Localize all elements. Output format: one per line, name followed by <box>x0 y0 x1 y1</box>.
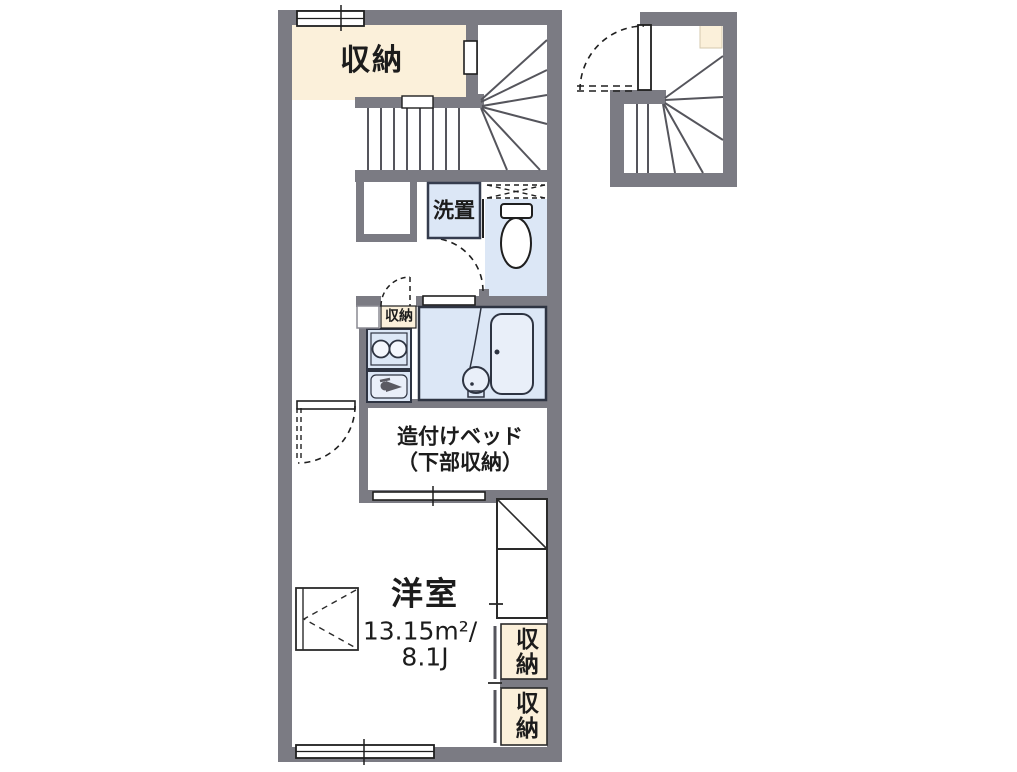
window-bed <box>373 492 485 500</box>
main-room-area-tatami: 8.1J <box>401 644 448 671</box>
wall-right <box>547 10 562 762</box>
wall-left <box>278 10 292 762</box>
bathtub-drain <box>495 350 500 355</box>
storage-right-bottom-label: 収納 <box>512 691 537 741</box>
wall-nook-right <box>410 182 417 238</box>
bed-label-line1: 造付けベッド <box>397 426 523 449</box>
main-room-door <box>297 401 355 409</box>
stair-block-wall-top <box>640 12 737 26</box>
burner-left <box>373 341 390 358</box>
stair-block-wall-left <box>610 90 624 187</box>
closet-top-label: 収納 <box>340 45 404 77</box>
main-room-label: 洋室 <box>391 577 459 612</box>
stair-block-closet-area <box>700 25 722 48</box>
main-room-area-sqm: 13.15m²/ <box>363 618 477 645</box>
wall-nook-bottom <box>356 234 417 242</box>
wash-basin-icon <box>463 367 489 393</box>
floor-plan: 収納 洗置 収納 造付けベッド （下部収納） 洋室 13.15m²/ 8.1J … <box>0 0 1017 772</box>
bed-label-line2: （下部収納） <box>397 452 523 475</box>
wall-storage-divider <box>500 679 547 688</box>
stair-block-door <box>638 25 651 90</box>
bath-door <box>423 296 475 305</box>
laundry-label: 洗置 <box>433 200 475 223</box>
floor-plan-drawing <box>0 0 1017 772</box>
stair-block-newel <box>610 90 666 104</box>
burner-right <box>390 341 407 358</box>
bathroom-unit <box>419 307 546 400</box>
storage-right-top-label: 収納 <box>512 627 537 677</box>
stair-block-wall-bottom <box>610 173 737 187</box>
wall-stair-bottom <box>355 170 547 182</box>
folding-window-icon <box>296 588 358 650</box>
closet-top-door <box>464 41 477 74</box>
closet-bottom-opening <box>402 96 433 108</box>
wall-nook-left <box>356 182 364 238</box>
stair-block-wall-right <box>723 12 737 187</box>
refrigerator-space <box>497 549 547 618</box>
closet-small-label: 収納 <box>385 309 413 324</box>
toilet-icon <box>501 204 532 268</box>
small-shelf <box>357 306 379 328</box>
kitchen <box>367 329 411 402</box>
